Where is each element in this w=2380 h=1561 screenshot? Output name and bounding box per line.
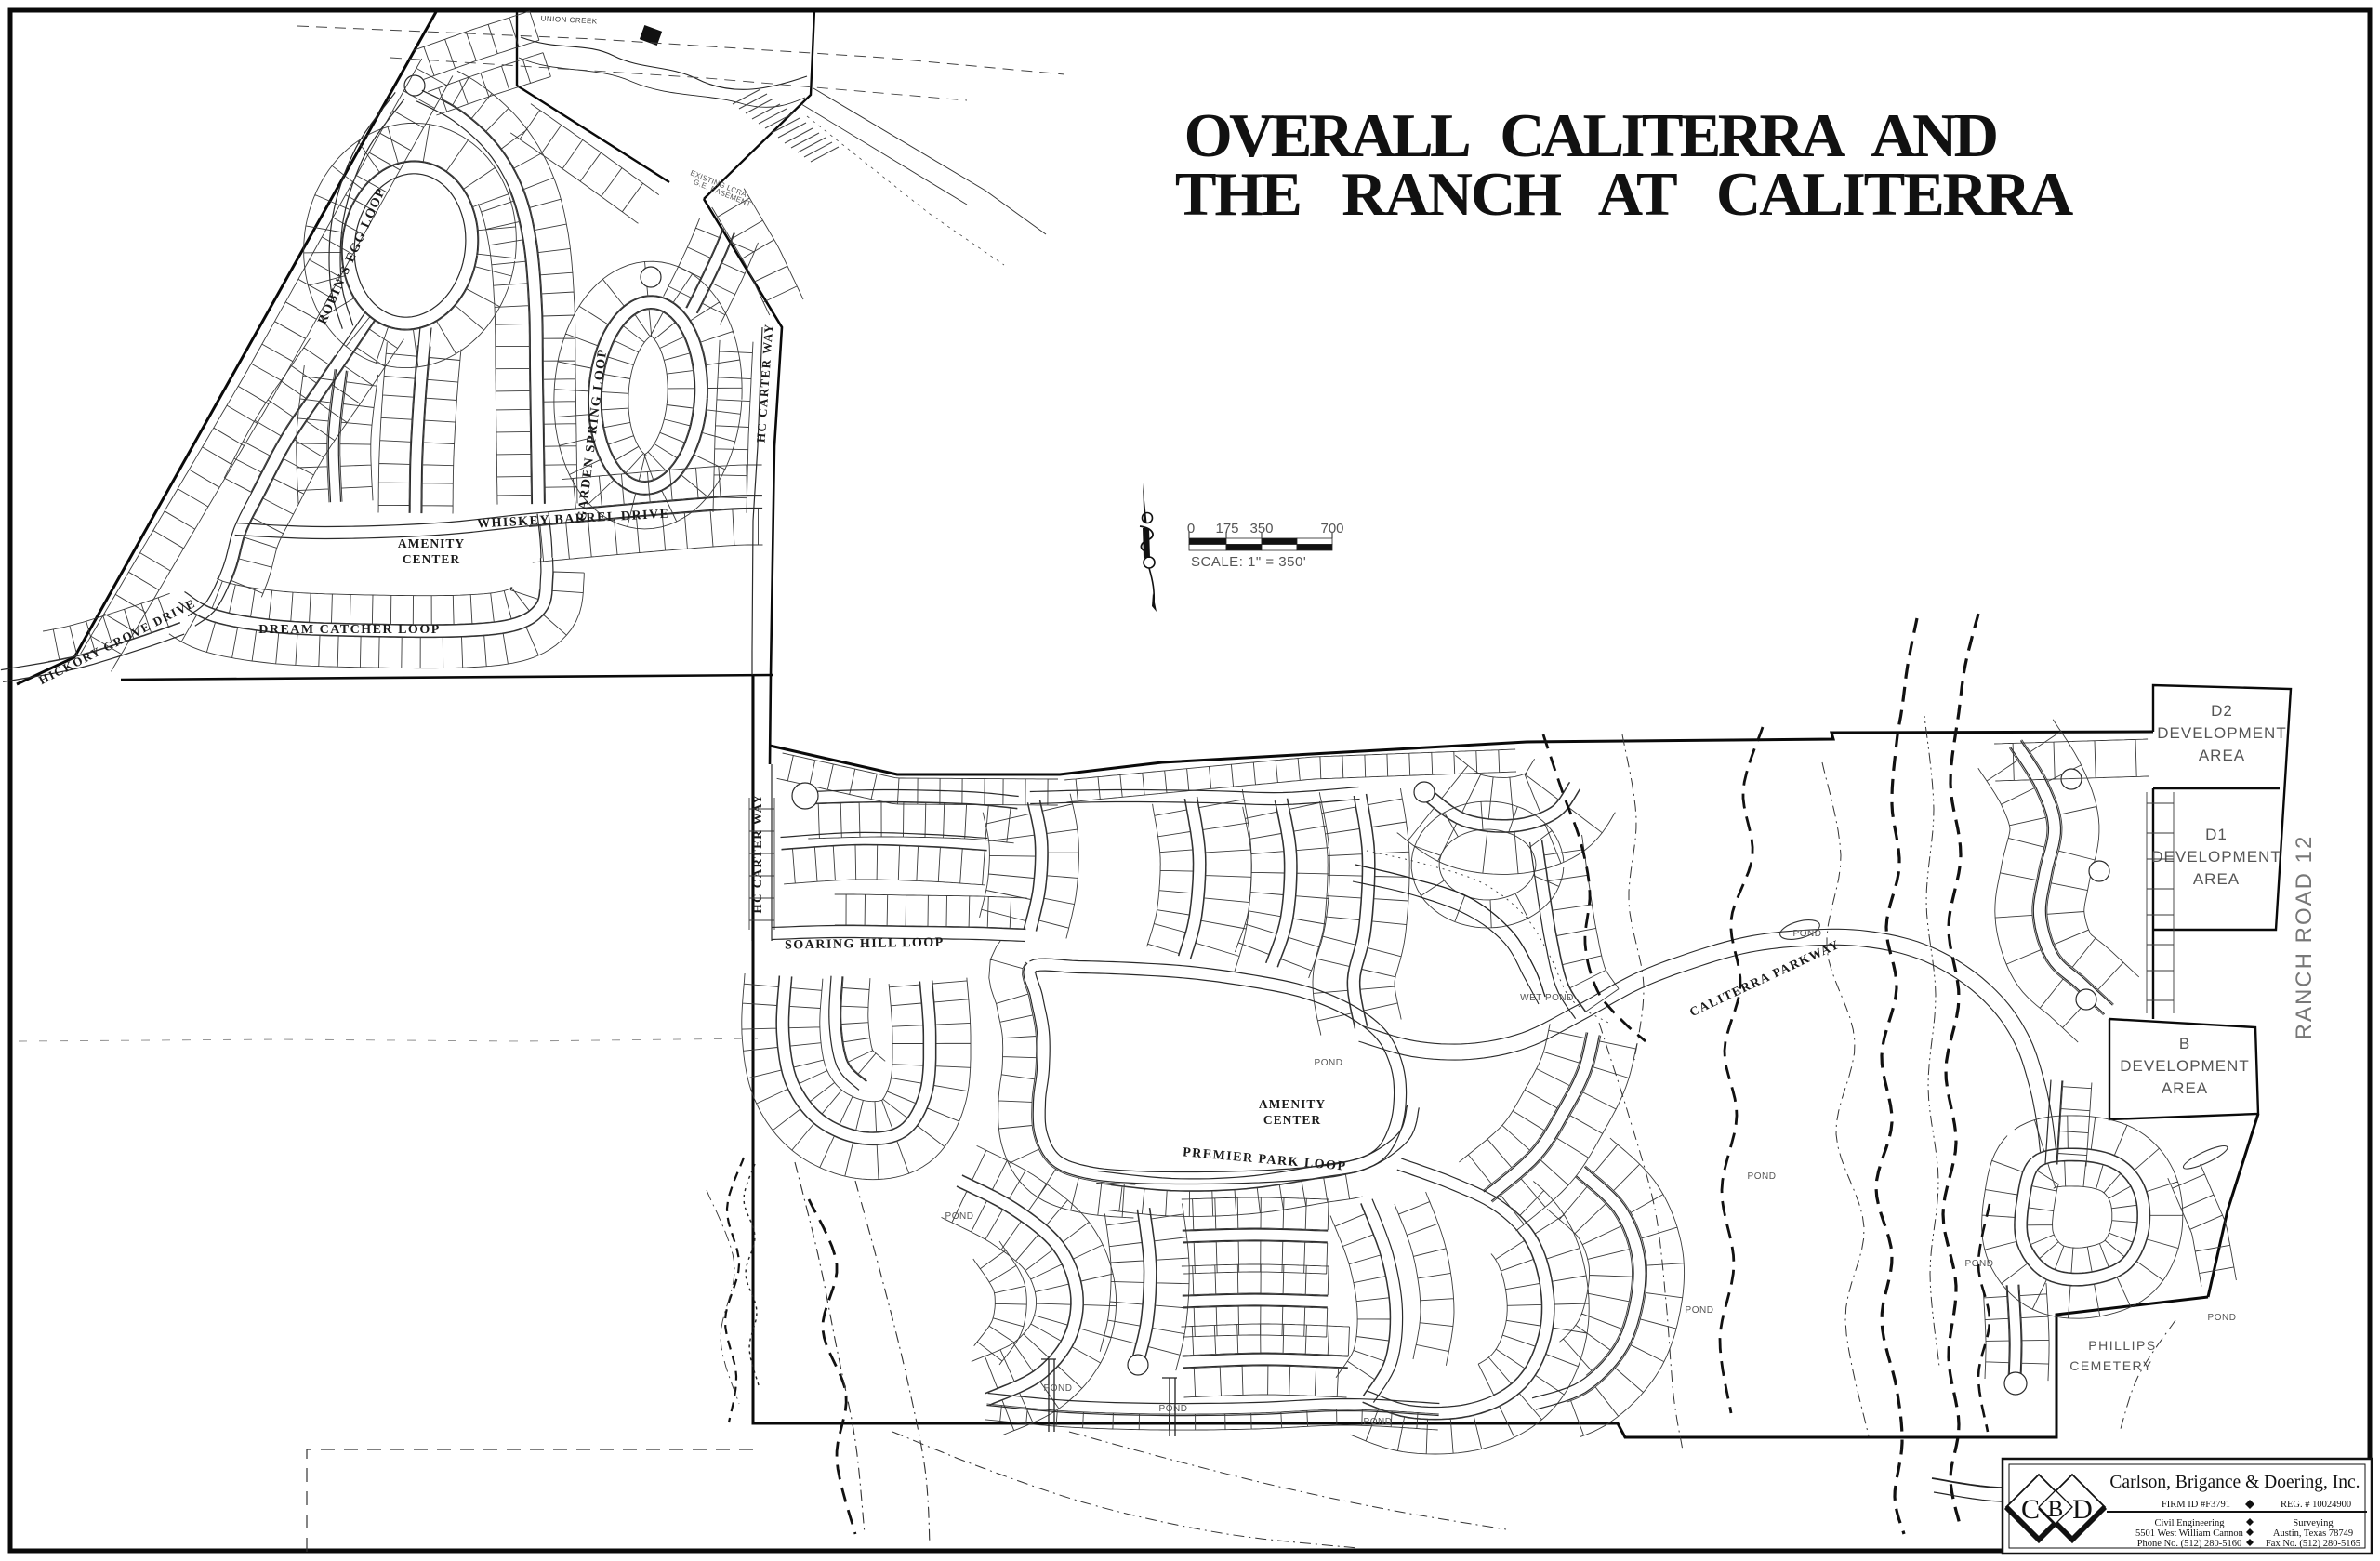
svg-text:POND: POND xyxy=(1364,1417,1393,1427)
svg-text:D: D xyxy=(2072,1494,2093,1525)
svg-text:AMENITY: AMENITY xyxy=(1259,1097,1326,1111)
svg-text:DEVELOPMENT: DEVELOPMENT xyxy=(2120,1057,2249,1075)
svg-text:DREAM CATCHER LOOP: DREAM CATCHER LOOP xyxy=(258,623,441,637)
svg-text:Fax No. (512) 280-5165: Fax No. (512) 280-5165 xyxy=(2266,1539,2360,1549)
svg-text:POND: POND xyxy=(1748,1171,1777,1182)
svg-text:PHILLIPS: PHILLIPS xyxy=(2088,1338,2156,1353)
svg-text:CENTER: CENTER xyxy=(1263,1113,1321,1127)
svg-text:AREA: AREA xyxy=(2193,870,2240,888)
svg-text:POND: POND xyxy=(1686,1305,1714,1316)
svg-text:350: 350 xyxy=(1249,521,1273,536)
svg-text:175: 175 xyxy=(1215,521,1238,536)
svg-text:Carlson, Brigance & Doering, I: Carlson, Brigance & Doering, Inc. xyxy=(2109,1473,2360,1492)
svg-text:RANCH ROAD 12: RANCH ROAD 12 xyxy=(2292,835,2317,1040)
svg-text:POND: POND xyxy=(1159,1404,1188,1414)
svg-text:AREA: AREA xyxy=(2162,1079,2208,1097)
svg-text:Surveying: Surveying xyxy=(2293,1518,2334,1528)
svg-text:B: B xyxy=(2179,1035,2190,1052)
svg-text:D2: D2 xyxy=(2211,702,2233,720)
svg-text:D1: D1 xyxy=(2205,826,2228,843)
svg-text:THE RANCH AT CALITERRA: THE RANCH AT CALITERRA xyxy=(1175,160,2073,229)
svg-text:POND: POND xyxy=(1315,1058,1343,1068)
svg-text:C: C xyxy=(2021,1494,2040,1525)
svg-text:POND: POND xyxy=(1044,1383,1073,1394)
svg-text:SCALE: 1" = 350': SCALE: 1" = 350' xyxy=(1191,554,1306,570)
svg-text:B: B xyxy=(2048,1497,2064,1522)
svg-text:POND: POND xyxy=(2208,1313,2237,1323)
svg-text:Phone No. (512) 280-5160: Phone No. (512) 280-5160 xyxy=(2137,1539,2242,1549)
svg-text:DEVELOPMENT: DEVELOPMENT xyxy=(2151,848,2281,866)
svg-text:SOARING HILL LOOP: SOARING HILL LOOP xyxy=(785,936,945,953)
svg-text:POND: POND xyxy=(1965,1259,1994,1269)
svg-text:CEMETERY: CEMETERY xyxy=(2069,1358,2153,1373)
svg-text:AREA: AREA xyxy=(2199,747,2245,764)
svg-text:POND: POND xyxy=(1793,929,1822,939)
svg-text:DEVELOPMENT: DEVELOPMENT xyxy=(2157,724,2286,742)
svg-text:0: 0 xyxy=(1187,521,1195,536)
svg-text:CENTER: CENTER xyxy=(403,552,460,566)
svg-text:REG. # 10024900: REG. # 10024900 xyxy=(2281,1500,2351,1510)
svg-text:Austin, Texas 78749: Austin, Texas 78749 xyxy=(2273,1528,2353,1539)
svg-text:FIRM ID #F3791: FIRM ID #F3791 xyxy=(2162,1500,2230,1510)
svg-text:POND: POND xyxy=(945,1211,974,1222)
svg-text:700: 700 xyxy=(1320,521,1343,536)
svg-text:5501 West William Cannon: 5501 West William Cannon xyxy=(2135,1528,2244,1539)
svg-text:Civil Engineering: Civil Engineering xyxy=(2155,1518,2226,1528)
svg-text:AMENITY: AMENITY xyxy=(398,536,465,550)
svg-text:WET POND: WET POND xyxy=(1520,993,1574,1003)
